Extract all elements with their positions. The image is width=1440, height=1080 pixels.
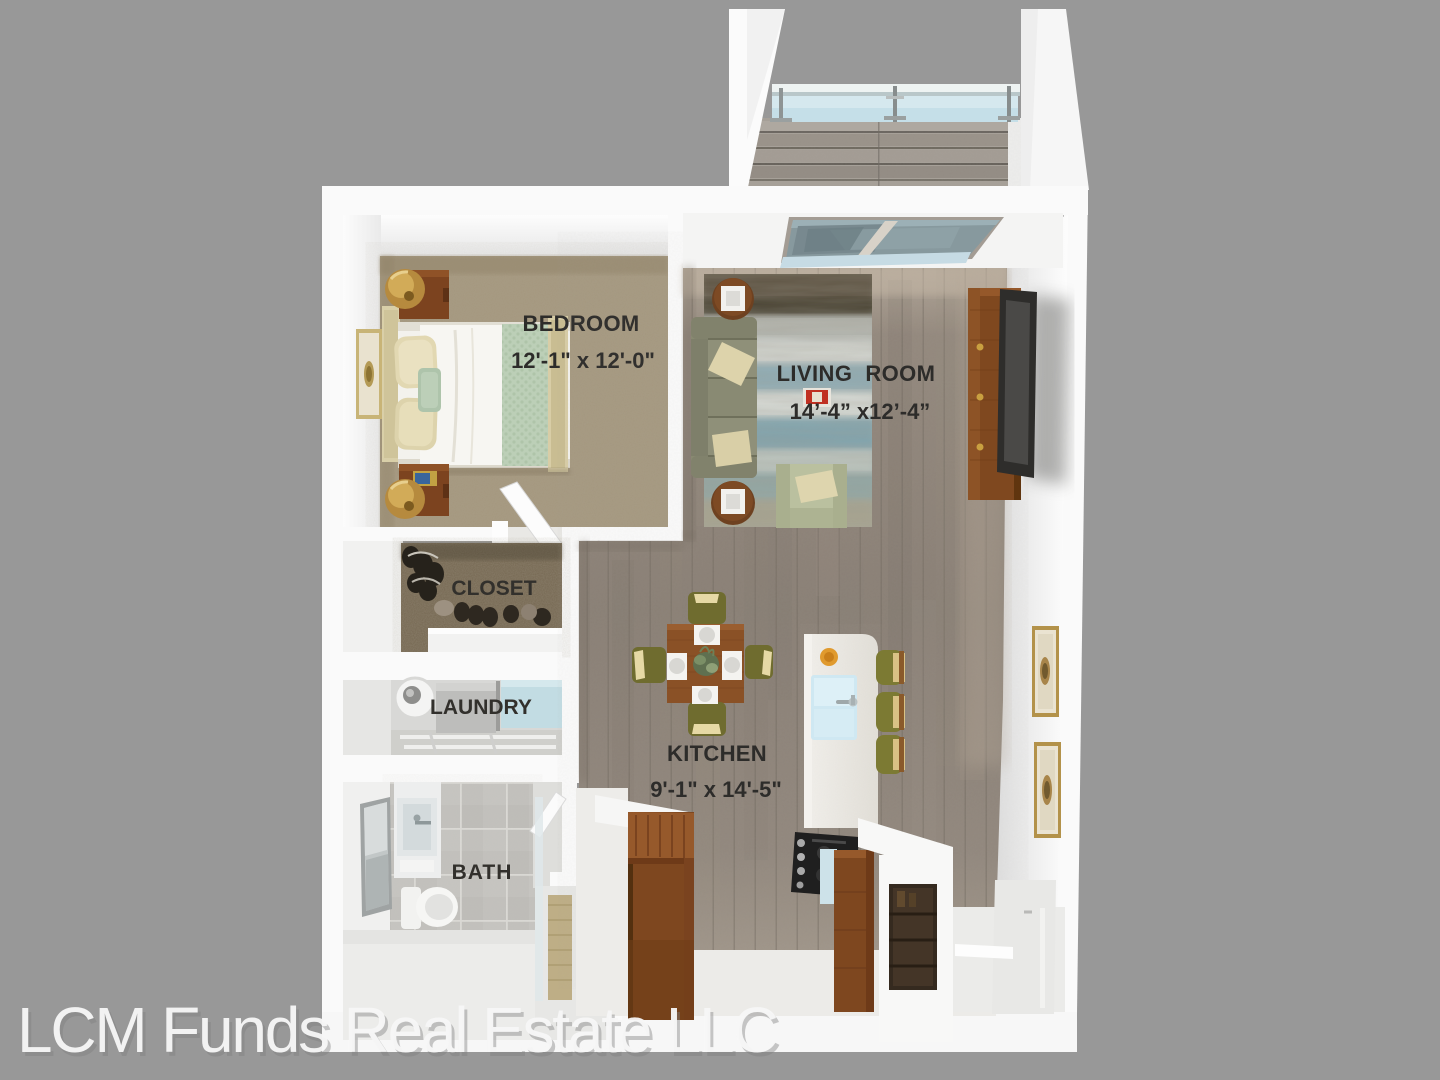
svg-text:LCM Funds Real Estate LLC: LCM Funds Real Estate LLC — [17, 994, 777, 1066]
svg-text:12'-1" x 12'-0": 12'-1" x 12'-0" — [511, 348, 655, 373]
svg-text:KITCHEN: KITCHEN — [667, 741, 767, 766]
svg-text:14’-4” x12’-4”: 14’-4” x12’-4” — [790, 399, 931, 424]
svg-text:9'-1" x 14'-5": 9'-1" x 14'-5" — [650, 777, 782, 802]
svg-text:BATH: BATH — [452, 861, 513, 884]
svg-text:CLOSET: CLOSET — [451, 577, 536, 600]
svg-text:BEDROOM: BEDROOM — [523, 311, 640, 336]
svg-text:LAUNDRY: LAUNDRY — [430, 696, 532, 719]
svg-text:LIVING ROOM: LIVING ROOM — [777, 361, 936, 386]
